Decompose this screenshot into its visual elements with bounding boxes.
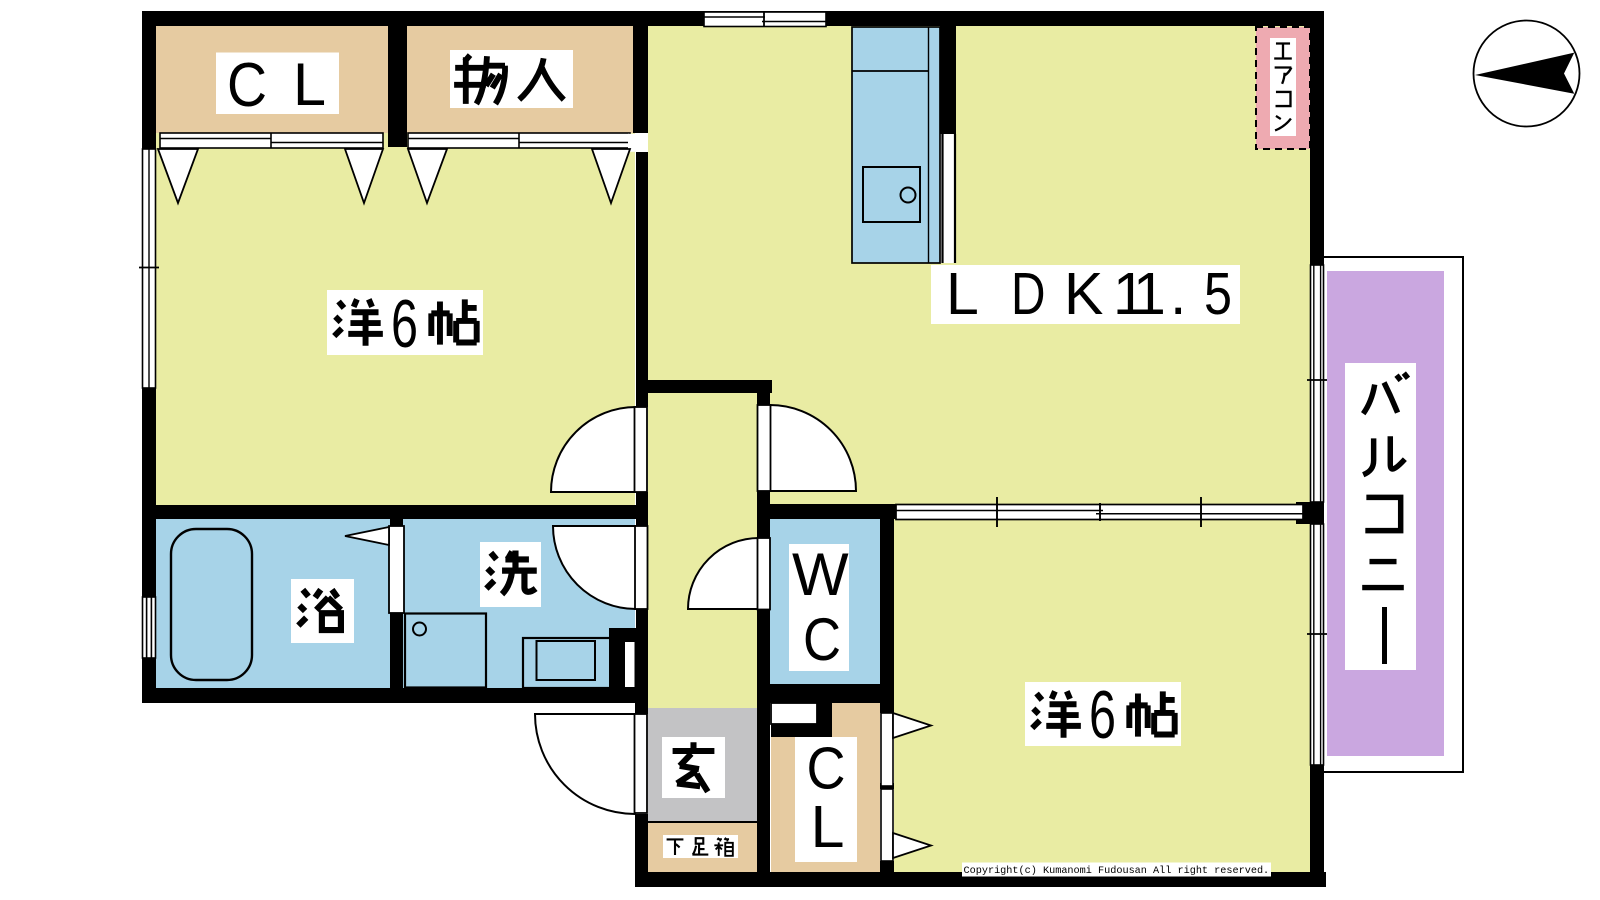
svg-text:1: 1 bbox=[1133, 261, 1166, 327]
svg-text:L: L bbox=[946, 261, 979, 327]
svg-text:Copyright(c) Kumanomi Fudousan: Copyright(c) Kumanomi Fudousan All right… bbox=[964, 865, 1270, 877]
svg-text:C: C bbox=[227, 51, 267, 120]
svg-text:6: 6 bbox=[1089, 677, 1116, 753]
svg-text:L: L bbox=[811, 794, 845, 860]
svg-text:C: C bbox=[807, 736, 846, 802]
svg-text:W: W bbox=[792, 541, 849, 608]
svg-text:D: D bbox=[1011, 261, 1046, 327]
svg-text:6: 6 bbox=[391, 286, 418, 362]
svg-text:L: L bbox=[293, 51, 326, 118]
svg-text:C: C bbox=[803, 606, 841, 673]
svg-text:K: K bbox=[1064, 261, 1103, 327]
svg-text:5: 5 bbox=[1204, 261, 1232, 327]
svg-text:.: . bbox=[1170, 261, 1186, 327]
